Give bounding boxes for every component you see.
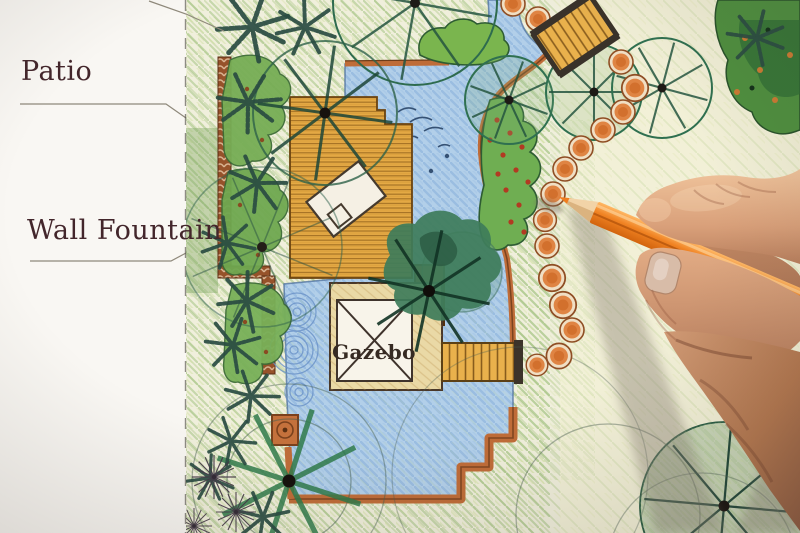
plan-drawing: Gazebo Patio Wall Fountain xyxy=(0,0,800,533)
photo-vignette xyxy=(0,0,800,533)
landscape-plan-photo: Gazebo Patio Wall Fountain xyxy=(0,0,800,533)
